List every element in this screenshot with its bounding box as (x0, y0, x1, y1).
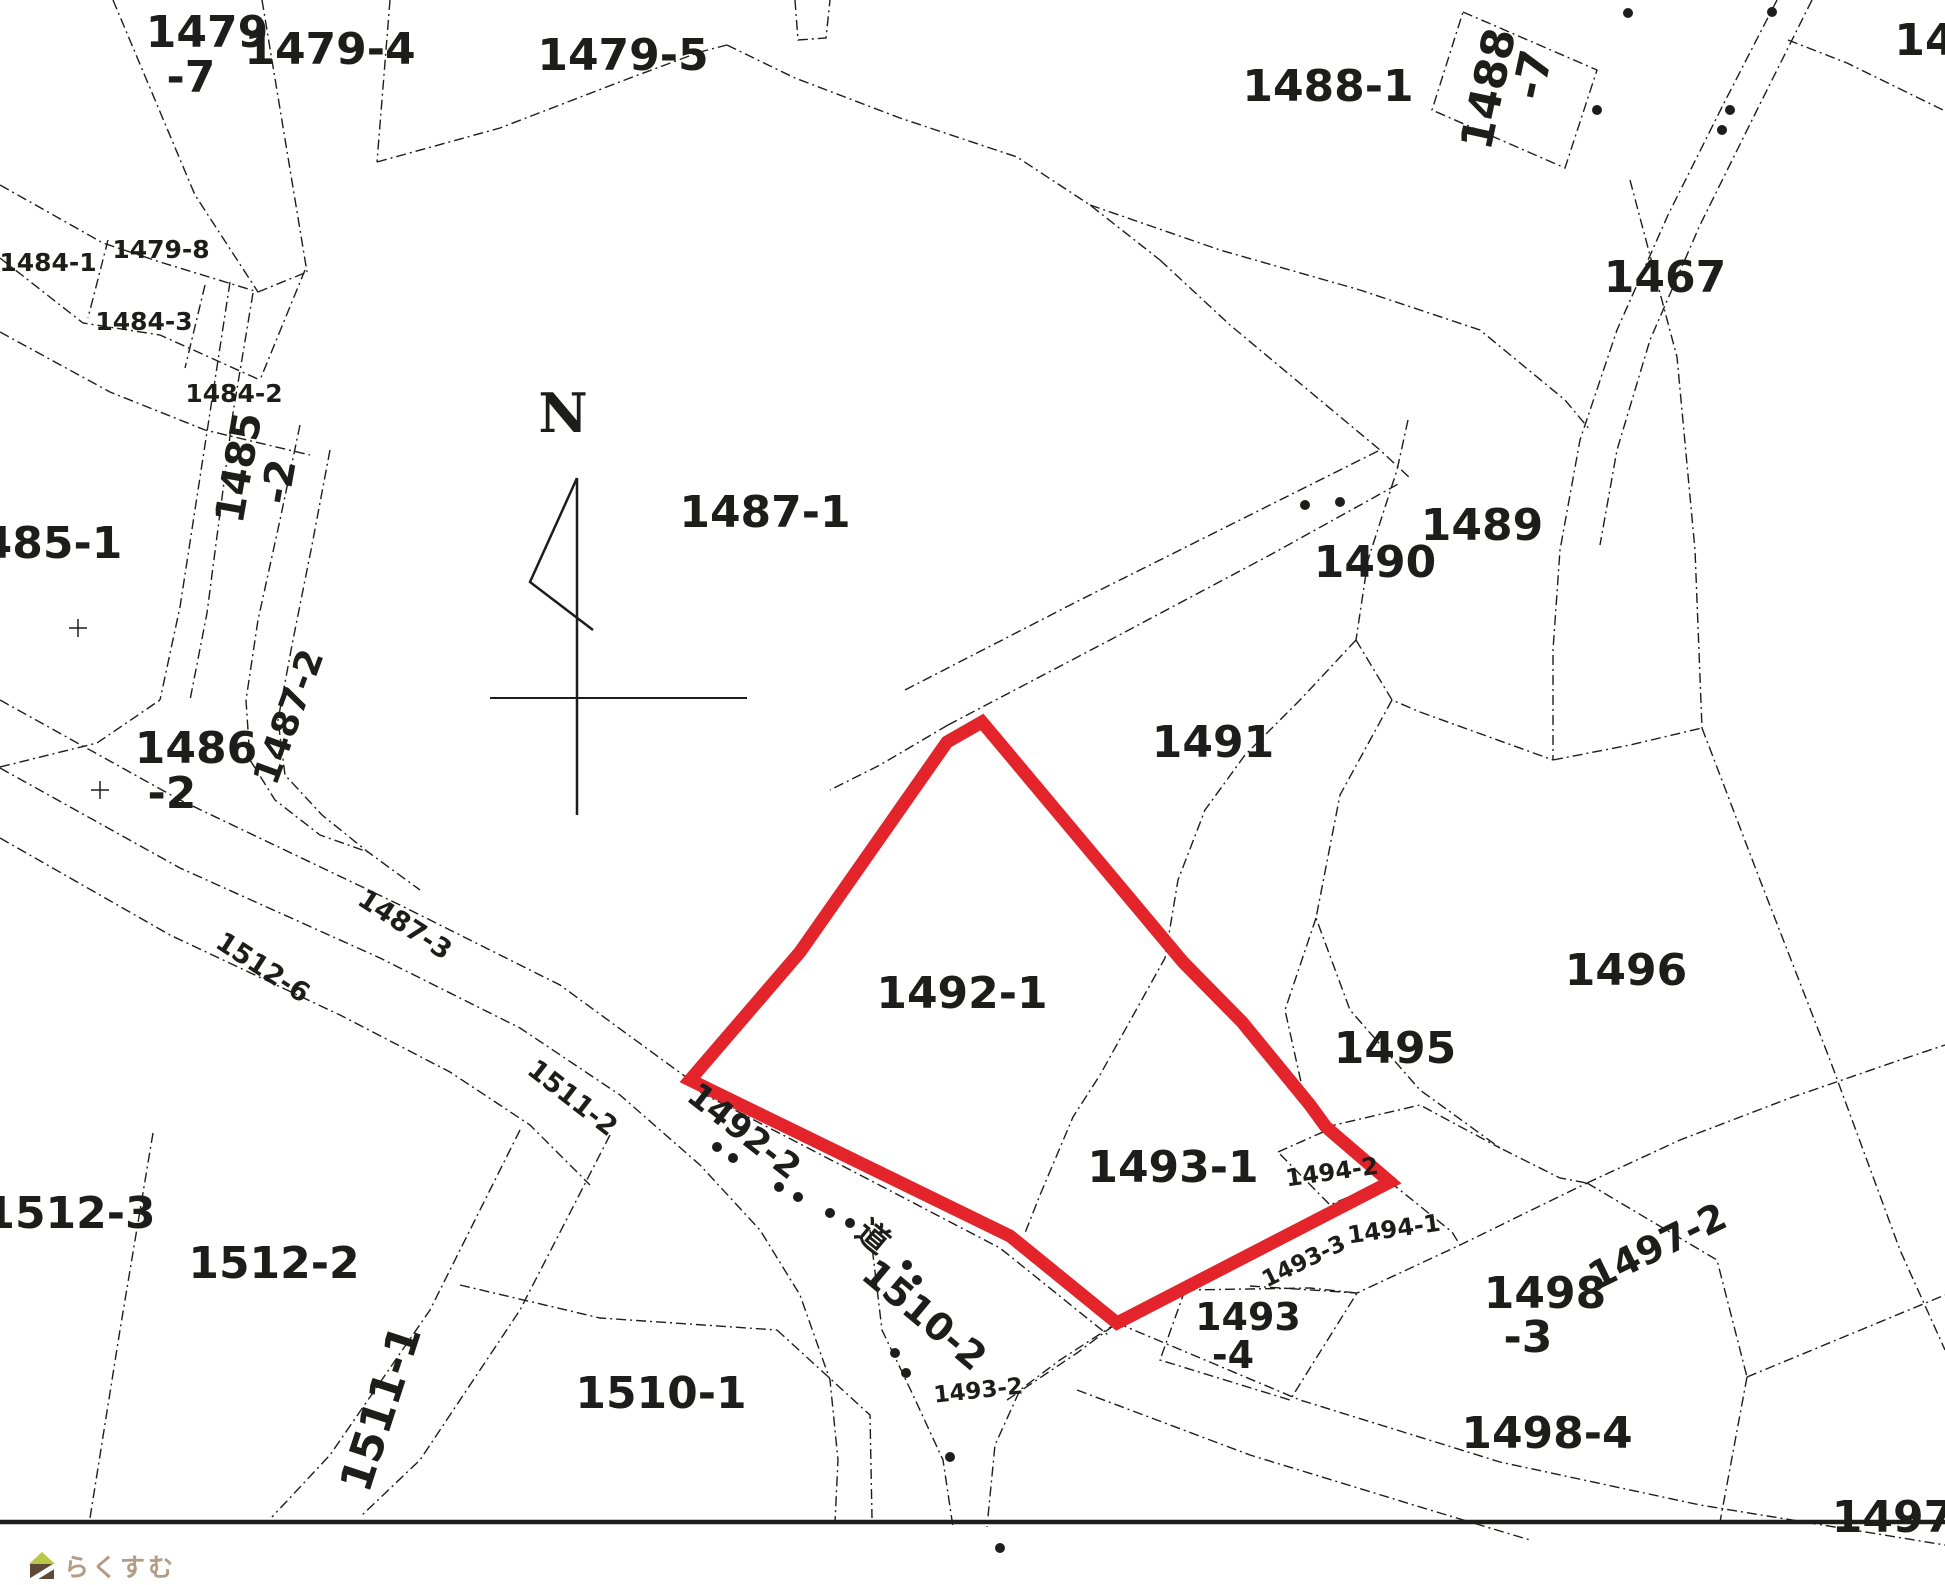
parcel-label-p1494-1: 1494-1 (1346, 1209, 1442, 1250)
watermark-text: らくすむ (64, 1548, 176, 1584)
survey-dot (1623, 8, 1633, 18)
parcel-boundary-line (1702, 728, 1945, 1350)
north-compass-line (530, 478, 593, 630)
survey-dot (793, 1192, 803, 1202)
parcel-label-p1511-1: 1511-1 (330, 1319, 431, 1498)
parcel-label-p1497-2: 1497-2 (1581, 1194, 1733, 1298)
parcel-boundary-line (948, 483, 1400, 725)
parcel-label-p1510-1: 1510-1 (575, 1368, 746, 1419)
parcel-boundary-line (1356, 640, 1420, 712)
parcel-label-p1479-4: 1479-4 (244, 24, 415, 75)
parcel-label-p1494-2: 1494-2 (1284, 1152, 1380, 1193)
parcel-label-p1479-5: 1479-5 (537, 30, 708, 81)
parcel-boundary-line (1007, 1323, 1117, 1400)
parcel-label-p1487-1: 1487-1 (679, 487, 850, 538)
parcel-label-p1488-7b: -7 (1503, 46, 1563, 104)
parcel-label-p1484-3: 1484-3 (95, 307, 192, 336)
cadastral-map-svg: 1479-71479-41479-51488-11488-71414671484… (0, 0, 1945, 1585)
parcel-label-p1486-2a: 1486 (135, 723, 257, 774)
parcel-boundary-line (260, 270, 305, 380)
survey-dot (825, 1208, 835, 1218)
survey-dot (890, 1348, 900, 1358)
parcel-label-p1484-2: 1484-2 (185, 379, 282, 408)
parcel-label-p1490: 1490 (1314, 537, 1436, 588)
survey-dot (1717, 125, 1727, 135)
parcel-boundary-line (1160, 260, 1410, 478)
parcel-label-p1488-1: 1488-1 (1242, 61, 1413, 112)
parcel-label-p1479-7b: -7 (167, 52, 216, 103)
survey-dot (945, 1452, 955, 1462)
parcel-boundary-line (0, 700, 690, 1080)
parcel-label-p1512-3: 1512-3 (0, 1188, 156, 1239)
parcel-boundary-line (1587, 1045, 1945, 1183)
parcel-label-p1497: 1497 (1832, 1492, 1945, 1543)
parcel-boundary-line (1747, 1295, 1945, 1377)
parcel-boundary-line (727, 45, 1160, 260)
parcel-label-p1487-2: 1487-2 (246, 644, 332, 790)
parcel-label-p1467: 1467 (1604, 252, 1726, 303)
watermark-rakusumu: らくすむ (28, 1548, 176, 1584)
parcel-label-p1479-8: 1479-8 (112, 235, 209, 264)
cadastral-map-viewport: 1479-71479-41479-51488-11488-71414671484… (0, 0, 1945, 1585)
parcel-label-p1493-4b: -4 (1212, 1333, 1254, 1377)
parcel-boundary-line (1553, 0, 1777, 760)
parcel-label-p1491: 1491 (1152, 717, 1274, 768)
survey-dot (728, 1153, 738, 1163)
parcel-boundary-line (0, 838, 590, 1185)
parcel-boundary-line (777, 1330, 872, 1518)
parcel-label-p1512-2: 1512-2 (188, 1238, 359, 1289)
survey-dot (845, 1218, 855, 1228)
parcel-boundary-line (795, 0, 830, 40)
parcel-label-p1512-6: 1512-6 (210, 926, 315, 1009)
parcel-label-p1485-1: 485-1 (0, 518, 122, 569)
parcel-label-p1485-2b: -2 (253, 456, 306, 508)
parcel-label-p1484-1: 1484-1 (0, 248, 97, 277)
parcel-boundary-line (1720, 1377, 1747, 1522)
survey-dot (1300, 500, 1310, 510)
parcel-label-p1493-2: 1493-2 (932, 1373, 1024, 1408)
survey-dot (995, 1543, 1005, 1553)
parcel-label-p1493-1: 1493-1 (1087, 1142, 1258, 1193)
parcel-label-north-letter: N (538, 381, 587, 445)
survey-dot (901, 1368, 911, 1378)
survey-dot (1725, 105, 1735, 115)
parcel-label-p14-edge: 14 (1894, 15, 1945, 66)
parcel-boundary-line (1090, 205, 1590, 430)
parcel-boundary-line (1356, 420, 1408, 640)
parcel-boundary-line (905, 450, 1380, 690)
parcel-label-p1492-1: 1492-1 (876, 968, 1047, 1019)
parcel-boundary-line (258, 272, 307, 292)
parcel-label-p1487-3: 1487-3 (352, 883, 457, 966)
parcel-boundary-line (1420, 712, 1553, 760)
survey-dot (1767, 7, 1777, 17)
parcel-label-p1495: 1495 (1334, 1023, 1456, 1074)
parcel-label-p1498-3b: -3 (1504, 1312, 1553, 1363)
parcel-label-p1511-2: 1511-2 (521, 1054, 623, 1143)
parcel-label-p1486-2b: -2 (148, 768, 197, 819)
parcel-boundary-line (1316, 700, 1587, 1183)
parcel-boundary-line (460, 1285, 777, 1330)
parcel-label-road-kanji: 道 (849, 1212, 898, 1262)
parcel-label-p1498-4: 1498-4 (1461, 1408, 1632, 1459)
parcel-label-p1510-2: 1510-2 (854, 1251, 996, 1380)
house-icon (28, 1552, 56, 1580)
parcel-label-p1496: 1496 (1565, 945, 1687, 996)
survey-dot (712, 1142, 722, 1152)
survey-dot (1335, 497, 1345, 507)
parcel-boundary-line (1553, 728, 1702, 760)
parcel-boundary-line (987, 1323, 1117, 1527)
parcel-label-p1489: 1489 (1421, 500, 1543, 551)
survey-dot (1592, 105, 1602, 115)
highlighted-parcels-1492-1-1493-1 (690, 722, 1390, 1323)
